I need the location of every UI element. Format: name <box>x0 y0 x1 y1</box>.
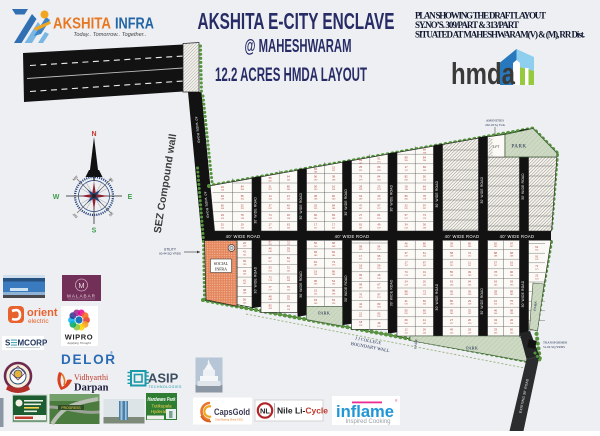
svg-text:43: 43 <box>494 318 497 322</box>
svg-text:30′ WIDE ROAD: 30′ WIDE ROAD <box>480 176 484 203</box>
svg-text:64: 64 <box>287 175 290 179</box>
svg-text:Tutikupala: Tutikupala <box>151 404 172 409</box>
svg-text:72: 72 <box>468 251 471 255</box>
svg-text:55: 55 <box>405 309 408 313</box>
svg-text:20: 20 <box>243 241 246 245</box>
svg-text:45: 45 <box>450 328 453 332</box>
svg-text:29: 29 <box>221 213 224 217</box>
svg-text:37: 37 <box>405 251 408 255</box>
svg-text:ASIP: ASIP <box>148 371 179 386</box>
svg-text:88: 88 <box>405 289 408 293</box>
svg-text:84: 84 <box>332 204 335 208</box>
svg-text:83: 83 <box>332 213 335 217</box>
svg-text:Darpan: Darpan <box>74 383 109 394</box>
svg-text:20: 20 <box>468 318 471 322</box>
svg-text:73: 73 <box>269 275 272 279</box>
svg-text:18: 18 <box>359 320 362 324</box>
svg-text:DELOR: DELOR <box>61 352 117 367</box>
svg-text:68: 68 <box>332 241 335 245</box>
svg-text:NL: NL <box>260 407 270 416</box>
svg-text:75: 75 <box>287 285 290 289</box>
svg-text:INFRA: INFRA <box>215 266 227 271</box>
svg-text:61: 61 <box>423 251 426 255</box>
svg-text:PARK: PARK <box>318 311 331 316</box>
svg-text:19: 19 <box>287 304 290 308</box>
svg-text:electric: electric <box>28 318 49 325</box>
svg-text:48: 48 <box>243 288 246 292</box>
svg-text:36: 36 <box>423 223 426 227</box>
svg-text:97: 97 <box>510 242 513 246</box>
svg-text:63: 63 <box>494 280 497 284</box>
svg-text:47: 47 <box>359 204 362 208</box>
svg-text:97: 97 <box>377 204 380 208</box>
svg-text:57: 57 <box>494 261 497 265</box>
svg-text:98: 98 <box>510 309 513 313</box>
svg-text:63: 63 <box>450 280 453 284</box>
svg-text:99: 99 <box>359 244 362 248</box>
svg-text:80: 80 <box>423 242 426 246</box>
svg-text:84: 84 <box>332 250 335 254</box>
svg-text:80: 80 <box>405 194 408 198</box>
svg-text:48: 48 <box>269 295 272 299</box>
svg-text:79: 79 <box>359 175 362 179</box>
svg-text:16: 16 <box>510 261 513 265</box>
svg-text:28: 28 <box>359 184 362 188</box>
svg-text:38: 38 <box>332 175 335 179</box>
svg-text:73: 73 <box>405 270 408 274</box>
svg-text:30′ WIDE ROAD: 30′ WIDE ROAD <box>299 271 303 298</box>
svg-text:30′ WIDE ROAD: 30′ WIDE ROAD <box>344 189 348 216</box>
svg-text:91: 91 <box>377 157 380 161</box>
svg-text:50: 50 <box>314 241 317 245</box>
svg-text:88: 88 <box>494 251 497 255</box>
svg-text:17: 17 <box>332 223 335 227</box>
svg-text:60.44 SQ YRDS: 60.44 SQ YRDS <box>159 252 181 256</box>
svg-text:40′ WIDE ROAD: 40′ WIDE ROAD <box>226 234 261 239</box>
svg-text:27: 27 <box>359 213 362 217</box>
svg-text:PARK: PARK <box>466 346 479 351</box>
svg-text:22: 22 <box>241 204 244 208</box>
svg-text:90: 90 <box>314 175 317 179</box>
svg-text:AKSHITA E-CITY ENCLAVE: AKSHITA E-CITY ENCLAVE <box>198 8 395 34</box>
svg-text:M: M <box>78 281 84 290</box>
svg-text:26: 26 <box>510 318 513 322</box>
svg-text:82: 82 <box>494 242 497 246</box>
svg-text:53: 53 <box>269 266 272 270</box>
svg-text:18: 18 <box>359 264 362 268</box>
svg-text:60: 60 <box>221 204 224 208</box>
svg-text:69: 69 <box>405 318 408 322</box>
svg-text:70: 70 <box>359 292 362 296</box>
svg-text:30′ WIDE ROAD: 30′ WIDE ROAD <box>299 192 303 219</box>
svg-text:65: 65 <box>269 176 272 180</box>
svg-text:55: 55 <box>450 270 453 274</box>
svg-text:75: 75 <box>510 299 513 303</box>
svg-text:18: 18 <box>287 213 290 217</box>
svg-text:84: 84 <box>423 156 426 160</box>
svg-text:25: 25 <box>287 295 290 299</box>
svg-text:30′ WIDE ROAD: 30′ WIDE ROAD <box>521 173 525 200</box>
svg-text:89: 89 <box>510 289 513 293</box>
svg-text:17: 17 <box>405 261 408 265</box>
svg-text:16: 16 <box>221 185 224 189</box>
svg-text:91: 91 <box>535 255 538 259</box>
svg-text:41: 41 <box>423 318 426 322</box>
svg-text:SY.NO’S. 309/PART & 313/PART: SY.NO’S. 309/PART & 313/PART <box>415 20 519 30</box>
svg-text:69: 69 <box>423 165 426 169</box>
svg-text:23: 23 <box>535 274 538 278</box>
svg-text:28: 28 <box>494 289 497 293</box>
svg-text:95: 95 <box>359 273 362 277</box>
svg-text:67: 67 <box>377 283 380 287</box>
svg-text:40′ WIDE ROAD: 40′ WIDE ROAD <box>335 234 370 239</box>
svg-text:60: 60 <box>423 309 426 313</box>
svg-text:81: 81 <box>377 213 380 217</box>
svg-text:19: 19 <box>241 223 244 227</box>
svg-text:TECHNOLOGIES: TECHNOLOGIES <box>149 385 183 389</box>
svg-text:46: 46 <box>269 247 272 251</box>
svg-text:53: 53 <box>287 256 290 260</box>
svg-text:31: 31 <box>423 270 426 274</box>
svg-text:54: 54 <box>377 244 380 248</box>
svg-text:63: 63 <box>359 194 362 198</box>
svg-text:30′ WIDE ROAD: 30′ WIDE ROAD <box>435 180 439 207</box>
svg-text:11: 11 <box>468 261 471 265</box>
svg-text:PARK: PARK <box>511 144 526 150</box>
svg-text:15: 15 <box>332 165 335 169</box>
svg-text:96: 96 <box>510 270 513 274</box>
svg-text:E: E <box>128 194 133 201</box>
svg-text:73: 73 <box>332 260 335 264</box>
svg-text:50: 50 <box>423 175 426 179</box>
svg-text:SOCIAL: SOCIAL <box>214 261 229 266</box>
svg-text:30′ WIDE ROAD: 30′ WIDE ROAD <box>254 266 258 293</box>
svg-text:Nile Li-Cycle: Nile Li-Cycle <box>277 406 328 416</box>
svg-text:74: 74 <box>269 213 272 217</box>
svg-text:20: 20 <box>423 280 426 284</box>
svg-text:93: 93 <box>221 194 224 198</box>
svg-text:80: 80 <box>287 184 290 188</box>
svg-text:26: 26 <box>423 328 426 332</box>
svg-text:84: 84 <box>314 167 317 171</box>
svg-text:90: 90 <box>314 184 317 188</box>
svg-text:67: 67 <box>423 261 426 265</box>
svg-text:97: 97 <box>423 204 426 208</box>
svg-text:30′ WIDE ROAD: 30′ WIDE ROAD <box>521 280 525 307</box>
svg-text:30′ WIDE ROAD: 30′ WIDE ROAD <box>344 275 348 302</box>
svg-text:63: 63 <box>287 275 290 279</box>
svg-text:92: 92 <box>377 312 380 316</box>
svg-text:21: 21 <box>287 194 290 198</box>
svg-text:58: 58 <box>450 251 453 255</box>
svg-text:46: 46 <box>405 242 408 246</box>
svg-text:12: 12 <box>405 328 408 332</box>
svg-text:78: 78 <box>241 213 244 217</box>
svg-text:77: 77 <box>269 285 272 289</box>
svg-text:50: 50 <box>510 328 513 332</box>
svg-text:65: 65 <box>450 309 453 313</box>
svg-text:46: 46 <box>377 273 380 277</box>
svg-text:83: 83 <box>269 303 272 307</box>
svg-text:21: 21 <box>359 312 362 316</box>
svg-text:30′ WIDE ROAD: 30′ WIDE ROAD <box>254 197 258 224</box>
svg-text:95: 95 <box>314 279 317 283</box>
svg-text:30′ WIDE ROAD: 30′ WIDE ROAD <box>480 288 484 315</box>
svg-text:33: 33 <box>377 194 380 198</box>
svg-text:89: 89 <box>405 156 408 160</box>
svg-text:30′ WIDE ROAD: 30′ WIDE ROAD <box>390 184 394 211</box>
svg-text:73: 73 <box>423 213 426 217</box>
svg-text:94: 94 <box>468 280 471 284</box>
svg-text:AKSHITA: AKSHITA <box>53 16 111 33</box>
svg-text:17: 17 <box>405 165 408 169</box>
svg-text:21: 21 <box>269 184 272 188</box>
svg-text:22: 22 <box>405 204 408 208</box>
svg-text:PROGRESS: PROGRESS <box>61 406 81 410</box>
svg-text:73: 73 <box>423 289 426 293</box>
svg-text:39: 39 <box>468 289 471 293</box>
svg-text:53: 53 <box>332 298 335 302</box>
svg-text:49: 49 <box>377 321 380 325</box>
svg-text:W: W <box>53 194 60 201</box>
svg-text:82: 82 <box>314 213 317 217</box>
svg-text:12.2 ACRES HMDA LAYOUT: 12.2 ACRES HMDA LAYOUT <box>215 65 367 86</box>
svg-text:86: 86 <box>332 269 335 273</box>
svg-text:63: 63 <box>314 298 317 302</box>
svg-text:19: 19 <box>314 269 317 273</box>
svg-text:34: 34 <box>405 223 408 227</box>
svg-text:81: 81 <box>314 260 317 264</box>
svg-text:24: 24 <box>405 280 408 284</box>
svg-text:99: 99 <box>359 283 362 287</box>
svg-text:56: 56 <box>241 194 244 198</box>
svg-text:33: 33 <box>243 269 246 273</box>
svg-text:Vidhyarthi: Vidhyarthi <box>74 373 109 382</box>
svg-text:82: 82 <box>405 175 408 179</box>
svg-text:83: 83 <box>314 250 317 254</box>
svg-text:30′ WIDE ROAD: 30′ WIDE ROAD <box>390 279 394 306</box>
svg-text:46: 46 <box>494 309 497 313</box>
svg-text:56: 56 <box>243 298 246 302</box>
svg-text:45: 45 <box>450 289 453 293</box>
svg-text:31: 31 <box>287 266 290 270</box>
svg-text:67: 67 <box>269 256 272 260</box>
svg-text:40: 40 <box>287 204 290 208</box>
svg-text:SITUATED AT MAHESHWARAM(V) & (: SITUATED AT MAHESHWARAM(V) & (M), RR Dis… <box>415 30 585 40</box>
svg-text:83: 83 <box>377 165 380 169</box>
svg-text:39: 39 <box>468 270 471 274</box>
svg-text:Today.. Tomorrow.. Together..: Today.. Tomorrow.. Together.. <box>73 32 146 38</box>
svg-text:Applying Thought: Applying Thought <box>66 341 91 345</box>
svg-text:29: 29 <box>287 247 290 251</box>
svg-text:MALABAR: MALABAR <box>67 294 96 299</box>
svg-text:40′ WIDE ROAD: 40′ WIDE ROAD <box>445 234 480 239</box>
svg-text:95: 95 <box>377 254 380 258</box>
svg-text:97: 97 <box>450 261 453 265</box>
svg-text:INFRA: INFRA <box>115 16 154 33</box>
svg-text:PLAN SHOWING THE DRAFT LAYOUT: PLAN SHOWING THE DRAFT LAYOUT <box>415 11 546 21</box>
svg-text:Inspired Cooking: Inspired Cooking <box>345 419 390 425</box>
svg-text:18: 18 <box>405 184 408 188</box>
svg-text:hmda: hmda <box>451 56 516 91</box>
svg-text:17: 17 <box>359 254 362 258</box>
svg-text:83: 83 <box>377 302 380 306</box>
svg-text:10: 10 <box>494 299 497 303</box>
svg-text:14: 14 <box>269 194 272 198</box>
svg-text:17: 17 <box>269 223 272 227</box>
svg-text:60: 60 <box>332 194 335 198</box>
svg-text:57: 57 <box>405 213 408 217</box>
svg-text:78: 78 <box>494 270 497 274</box>
svg-text:S☰MCORP: S☰MCORP <box>5 339 48 348</box>
svg-text:85: 85 <box>468 242 471 246</box>
svg-text:CapsGold: CapsGold <box>214 407 250 418</box>
svg-text:54: 54 <box>332 279 335 283</box>
svg-text:64: 64 <box>423 184 426 188</box>
svg-text:80: 80 <box>450 299 453 303</box>
svg-text:41: 41 <box>243 250 246 254</box>
svg-text:29: 29 <box>468 299 471 303</box>
svg-text:68: 68 <box>510 251 513 255</box>
svg-text:Gold Buying Since 1901: Gold Buying Since 1901 <box>215 418 243 422</box>
svg-text:17: 17 <box>314 223 317 227</box>
svg-text:31: 31 <box>405 299 408 303</box>
svg-text:59: 59 <box>377 264 380 268</box>
svg-text:93: 93 <box>510 280 513 284</box>
svg-text:@ MAHESHWARAM: @ MAHESHWARAM <box>245 36 352 56</box>
svg-text:99: 99 <box>243 259 246 263</box>
svg-text:41: 41 <box>243 278 246 282</box>
svg-text:84: 84 <box>241 184 244 188</box>
svg-text:44: 44 <box>359 302 362 306</box>
svg-text:3 FT: 3 FT <box>493 145 500 149</box>
svg-text:Hardware Park: Hardware Park <box>148 397 176 403</box>
svg-text:39: 39 <box>450 242 453 246</box>
svg-text:29: 29 <box>468 328 471 332</box>
svg-text:68: 68 <box>423 148 426 152</box>
svg-text:61: 61 <box>535 245 538 249</box>
svg-text:27: 27 <box>450 318 453 322</box>
svg-text:84: 84 <box>377 175 380 179</box>
svg-text:63: 63 <box>287 223 290 227</box>
svg-text:30′ WIDE ROAD: 30′ WIDE ROAD <box>435 283 439 310</box>
svg-text:16: 16 <box>332 184 335 188</box>
svg-text:60: 60 <box>423 299 426 303</box>
svg-text:23: 23 <box>377 184 380 188</box>
svg-text:71: 71 <box>535 264 538 268</box>
svg-text:37: 37 <box>269 204 272 208</box>
svg-text:87: 87 <box>269 239 272 243</box>
svg-text:78: 78 <box>423 194 426 198</box>
svg-text:33: 33 <box>494 328 497 332</box>
svg-text:83: 83 <box>359 158 362 162</box>
svg-text:N: N <box>91 131 96 138</box>
svg-text:72: 72 <box>287 239 290 243</box>
svg-text:40′ WIDE ROAD: 40′ WIDE ROAD <box>500 234 535 239</box>
svg-text:97: 97 <box>377 292 380 296</box>
svg-text:38: 38 <box>314 194 317 198</box>
svg-text:98: 98 <box>332 289 335 293</box>
svg-text:25: 25 <box>314 204 317 208</box>
svg-text:51: 51 <box>221 223 224 227</box>
svg-text:25: 25 <box>359 165 362 169</box>
svg-text:32: 32 <box>468 309 471 313</box>
svg-text:51.04 SQ YRDS: 51.04 SQ YRDS <box>543 345 565 349</box>
svg-text:202.18 Sq Yrds: 202.18 Sq Yrds <box>485 123 506 127</box>
svg-text:81: 81 <box>359 223 362 227</box>
svg-text:49: 49 <box>377 223 380 227</box>
svg-text:15: 15 <box>314 289 317 293</box>
svg-text:®: ® <box>110 350 113 355</box>
svg-text:S: S <box>92 228 97 235</box>
